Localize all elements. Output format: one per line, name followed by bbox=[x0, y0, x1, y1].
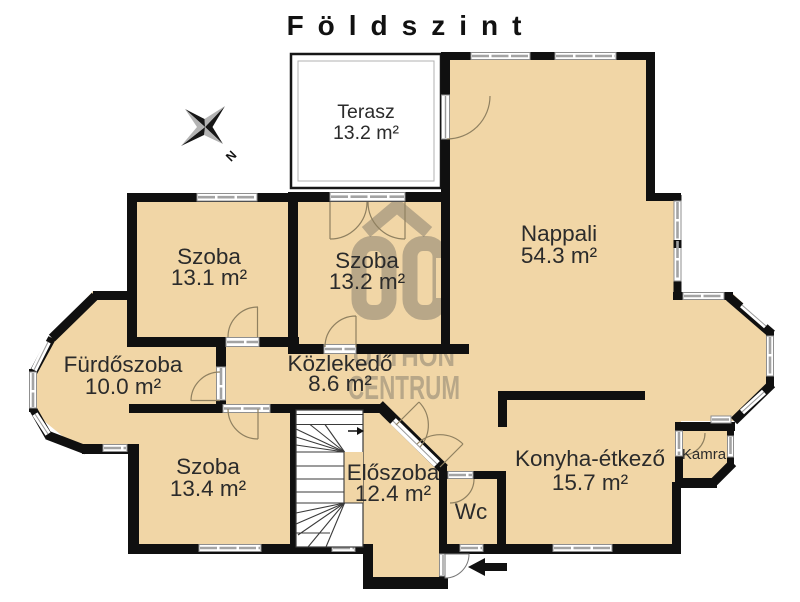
svg-text:Terasz: Terasz bbox=[337, 101, 394, 123]
svg-text:15.7 m²: 15.7 m² bbox=[552, 470, 629, 495]
svg-text:13.4 m²: 13.4 m² bbox=[170, 476, 247, 501]
svg-text:N: N bbox=[223, 148, 239, 164]
svg-text:54.3 m²: 54.3 m² bbox=[521, 243, 598, 268]
svg-text:13.2 m²: 13.2 m² bbox=[333, 122, 400, 144]
svg-text:Kamra: Kamra bbox=[682, 446, 727, 463]
svg-text:Földszint: Földszint bbox=[287, 10, 536, 41]
svg-text:10.0 m²: 10.0 m² bbox=[85, 374, 162, 399]
svg-text:13.2 m²: 13.2 m² bbox=[329, 269, 406, 294]
svg-text:13.1 m²: 13.1 m² bbox=[171, 265, 248, 290]
svg-text:Konyha-étkező: Konyha-étkező bbox=[515, 446, 665, 471]
svg-text:Wc: Wc bbox=[455, 499, 488, 524]
svg-text:12.4 m²: 12.4 m² bbox=[355, 481, 432, 506]
svg-text:8.6 m²: 8.6 m² bbox=[308, 371, 372, 396]
